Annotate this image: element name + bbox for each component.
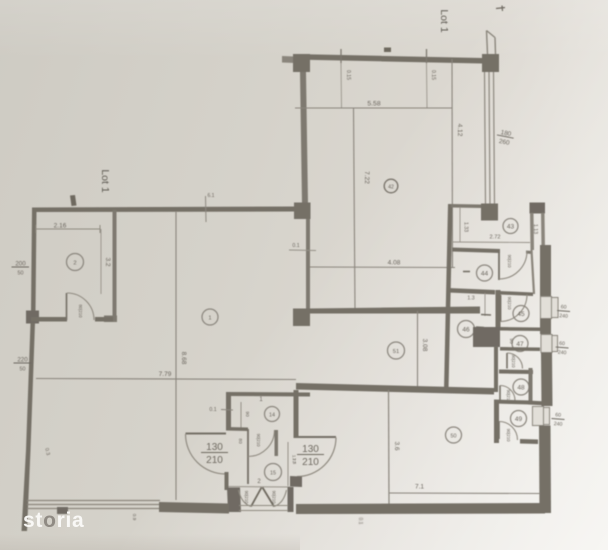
svg-text:0.1: 0.1 xyxy=(357,518,363,525)
